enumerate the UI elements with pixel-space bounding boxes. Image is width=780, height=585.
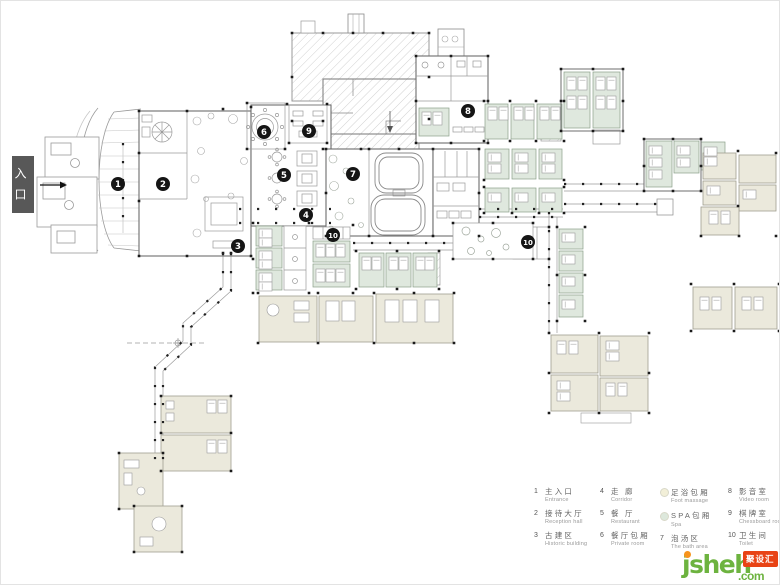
legend-item: 10卫生间Toilet	[728, 532, 780, 547]
legend-number: 6	[600, 532, 611, 539]
legend-column-2: 4走 廊Corridor5餐 厅Restaurant6餐厅包厢Private r…	[600, 488, 660, 550]
watermark-logo: jsheh 聚设汇 .com	[682, 550, 780, 585]
svg-text:4: 4	[303, 211, 309, 221]
logo-stamp: 聚设汇	[743, 551, 778, 567]
legend-swatch-icon	[660, 512, 669, 521]
legend-number: 7	[660, 535, 671, 542]
svg-text:10: 10	[328, 232, 338, 240]
legend-item: 2接待大厅Reception hall	[534, 510, 600, 525]
legend: 1主入口Entrance2接待大厅Reception hall3古建区Histo…	[534, 488, 780, 550]
legend-label-en: Reception hall	[545, 520, 600, 526]
legend-label-zh: 卫生间	[739, 532, 768, 540]
legend-label-en: Historic building	[545, 542, 600, 548]
datum-line	[127, 338, 207, 348]
plan-marker-6: 6	[257, 125, 271, 139]
plan-marker-9: 9	[302, 124, 316, 138]
legend-item: 8影音室Video room	[728, 488, 780, 503]
legend-label-zh: 古建区	[545, 532, 574, 540]
floor-plan-page: 1234567891010 入口 1主入口Entrance2接待大厅Recept…	[0, 0, 780, 585]
legend-label-zh: 主入口	[545, 488, 574, 496]
legend-item: SPA包厢Spa	[660, 512, 728, 529]
legend-item: 9棋牌室Chessboard room	[728, 510, 780, 525]
legend-label-zh: 足浴包厢	[671, 489, 710, 497]
plan-marker-4: 4	[299, 208, 313, 222]
legend-label-zh: 棋牌室	[739, 510, 768, 518]
svg-text:2: 2	[160, 180, 166, 190]
svg-text:9: 9	[306, 127, 312, 137]
entrance-sign: 入口	[12, 156, 34, 213]
legend-number: 10	[728, 532, 739, 539]
entrance-canopy	[37, 108, 141, 253]
legend-label-zh: 走 廊	[611, 488, 635, 496]
logo-orange-dot-icon	[684, 551, 691, 558]
legend-label-zh: 泡汤区	[671, 535, 700, 543]
svg-text:6: 6	[261, 128, 267, 138]
legend-label-zh: 接待大厅	[545, 510, 584, 518]
legend-item: 5餐 厅Restaurant	[600, 510, 660, 525]
legend-number: 2	[534, 510, 545, 517]
plan-marker-10: 10	[326, 228, 340, 242]
legend-number: 8	[728, 488, 739, 495]
legend-number: 3	[534, 532, 545, 539]
legend-item: 3古建区Historic building	[534, 532, 600, 547]
legend-label-en: Restaurant	[611, 520, 660, 526]
svg-text:3: 3	[235, 242, 241, 252]
legend-label-en: Foot massage	[671, 499, 728, 505]
legend-number: 4	[600, 488, 611, 495]
legend-label-en: Chessboard room	[739, 520, 780, 526]
legend-column-3: 足浴包厢Foot massageSPA包厢Spa7泡汤区The bath are…	[660, 488, 728, 550]
plan-marker-8: 8	[461, 104, 475, 118]
plan-marker-1: 1	[111, 177, 125, 191]
legend-label-zh: 影音室	[739, 488, 768, 496]
legend-item: 4走 廊Corridor	[600, 488, 660, 503]
legend-label-en: Private room	[611, 542, 660, 548]
legend-item: 足浴包厢Foot massage	[660, 488, 728, 505]
svg-text:8: 8	[465, 107, 471, 117]
legend-number: 5	[600, 510, 611, 517]
svg-text:10: 10	[523, 239, 533, 247]
legend-label-en: Spa	[671, 523, 728, 529]
legend-item: 6餐厅包厢Private room	[600, 532, 660, 547]
svg-text:1: 1	[115, 180, 121, 190]
svg-text:7: 7	[350, 170, 356, 180]
legend-swatch-icon	[660, 488, 669, 497]
legend-item: 7泡汤区The bath area	[660, 535, 728, 550]
legend-label-zh: 餐 厅	[611, 510, 635, 518]
plan-marker-3: 3	[231, 239, 245, 253]
logo-tld-text: .com	[738, 569, 764, 583]
plan-marker-2: 2	[156, 177, 170, 191]
legend-label-zh: SPA包厢	[671, 512, 711, 520]
legend-label-en: Video room	[739, 498, 780, 504]
legend-label-en: Corridor	[611, 498, 660, 504]
legend-column-4: 8影音室Video room9棋牌室Chessboard room10卫生间To…	[728, 488, 780, 550]
legend-label-en: Toilet	[739, 542, 780, 548]
legend-number: 1	[534, 488, 545, 495]
plan-marker-7: 7	[346, 167, 360, 181]
legend-column-1: 1主入口Entrance2接待大厅Reception hall3古建区Histo…	[534, 488, 600, 550]
legend-item: 1主入口Entrance	[534, 488, 600, 503]
svg-text:5: 5	[281, 171, 287, 181]
plan-marker-10: 10	[521, 235, 535, 249]
plan-marker-5: 5	[277, 168, 291, 182]
legend-label-zh: 餐厅包厢	[611, 532, 650, 540]
legend-number: 9	[728, 510, 739, 517]
legend-label-en: Entrance	[545, 498, 600, 504]
